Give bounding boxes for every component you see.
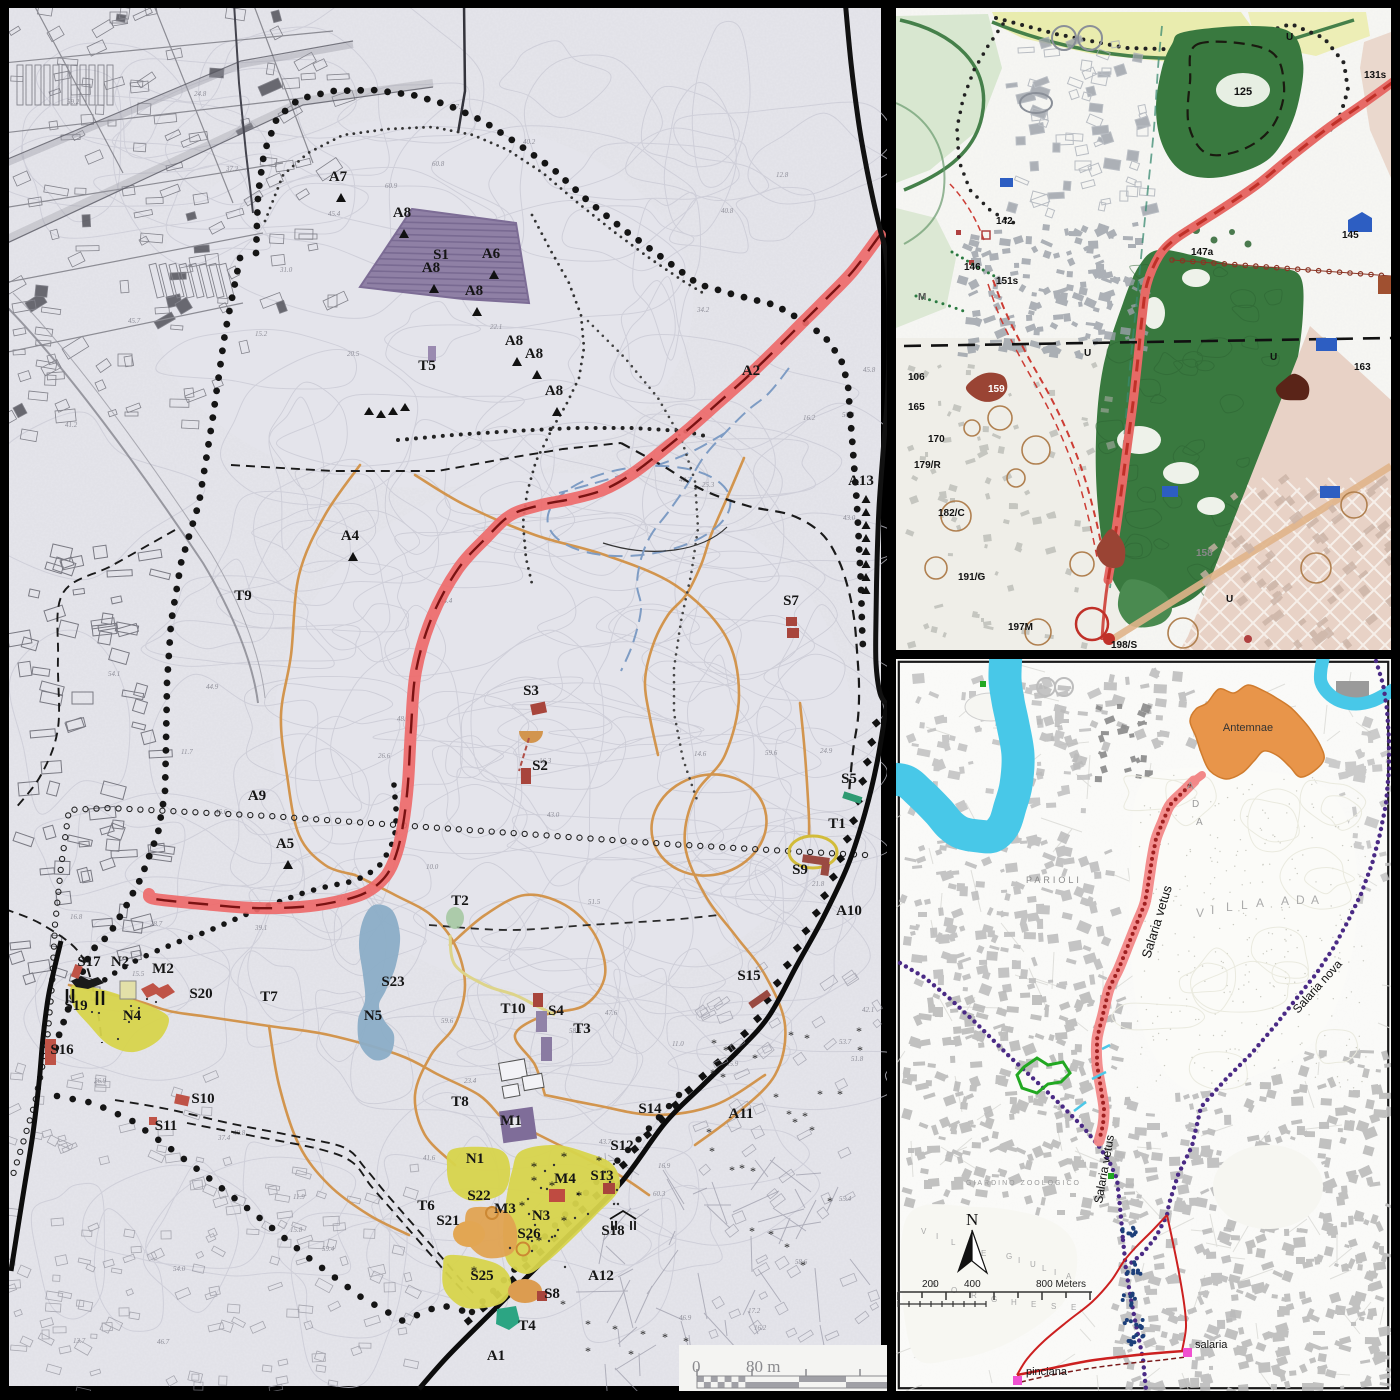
svg-text:146: 146 bbox=[964, 262, 981, 273]
svg-text:O: O bbox=[951, 1286, 957, 1295]
svg-text:15.5: 15.5 bbox=[132, 970, 145, 978]
svg-text:S19: S19 bbox=[64, 998, 87, 1014]
svg-text:42.1: 42.1 bbox=[862, 1006, 874, 1014]
svg-text:T8: T8 bbox=[451, 1094, 469, 1110]
svg-text:198/S: 198/S bbox=[1111, 640, 1137, 650]
svg-text:N1: N1 bbox=[466, 1151, 484, 1167]
svg-text:10.0: 10.0 bbox=[426, 863, 439, 871]
svg-text:*: * bbox=[784, 1240, 790, 1254]
svg-text:S26: S26 bbox=[517, 1226, 541, 1242]
svg-text:147a: 147a bbox=[1191, 247, 1214, 258]
svg-text:*: * bbox=[662, 1330, 668, 1344]
svg-text:A8: A8 bbox=[505, 333, 523, 349]
svg-text:179/R: 179/R bbox=[914, 460, 941, 471]
svg-text:N2: N2 bbox=[111, 954, 129, 970]
svg-text:31.0: 31.0 bbox=[279, 266, 293, 274]
svg-text:M: M bbox=[918, 292, 926, 303]
svg-text:*: * bbox=[640, 1327, 646, 1341]
svg-text:salaria: salaria bbox=[1195, 1339, 1228, 1351]
svg-text:*: * bbox=[711, 1036, 717, 1050]
svg-text:A4: A4 bbox=[341, 528, 360, 544]
svg-text:*: * bbox=[800, 1258, 806, 1272]
svg-text:A13: A13 bbox=[848, 473, 874, 489]
svg-text:*: * bbox=[857, 1043, 863, 1057]
svg-text:*: * bbox=[739, 1161, 745, 1175]
svg-text:*: * bbox=[709, 1144, 715, 1158]
svg-text:V: V bbox=[1196, 906, 1204, 920]
svg-text:*: * bbox=[729, 1163, 735, 1177]
svg-text:16.2: 16.2 bbox=[803, 414, 816, 422]
svg-text:12.8: 12.8 bbox=[776, 171, 789, 179]
svg-text:*: * bbox=[723, 1043, 729, 1057]
svg-text:I: I bbox=[1018, 1256, 1020, 1265]
svg-text:S16: S16 bbox=[50, 1042, 74, 1058]
svg-text:39.1: 39.1 bbox=[254, 924, 267, 932]
svg-text:197M: 197M bbox=[1008, 622, 1033, 633]
svg-text:43.0: 43.0 bbox=[547, 811, 560, 819]
svg-text:T9: T9 bbox=[234, 588, 252, 604]
svg-text:159: 159 bbox=[988, 384, 1005, 395]
svg-text:T3: T3 bbox=[573, 1021, 591, 1037]
svg-text:I: I bbox=[936, 1232, 938, 1241]
svg-text:106: 106 bbox=[908, 372, 925, 383]
svg-text:165: 165 bbox=[908, 402, 925, 413]
svg-text:A7: A7 bbox=[329, 169, 348, 185]
svg-text:U: U bbox=[1286, 32, 1293, 43]
svg-text:43.0: 43.0 bbox=[843, 514, 856, 522]
svg-text:11.0: 11.0 bbox=[672, 1040, 684, 1048]
svg-text:S7: S7 bbox=[783, 593, 799, 609]
svg-text:M1: M1 bbox=[500, 1113, 522, 1129]
svg-text:T2: T2 bbox=[451, 893, 469, 909]
svg-text:*: * bbox=[561, 1149, 568, 1164]
svg-text:L: L bbox=[951, 1238, 956, 1247]
svg-text:54.1: 54.1 bbox=[108, 670, 120, 678]
svg-text:S22: S22 bbox=[467, 1188, 490, 1204]
svg-text:T7: T7 bbox=[260, 989, 278, 1005]
svg-text:16.8: 16.8 bbox=[70, 913, 83, 921]
svg-text:S23: S23 bbox=[381, 974, 404, 990]
svg-text:46.7: 46.7 bbox=[157, 1338, 170, 1346]
svg-text:A8: A8 bbox=[545, 383, 563, 399]
svg-text:A9: A9 bbox=[248, 788, 266, 804]
svg-text:E: E bbox=[1031, 1300, 1036, 1309]
svg-text:H: H bbox=[1011, 1298, 1017, 1307]
svg-text:26.6: 26.6 bbox=[378, 752, 391, 760]
svg-text:45.7: 45.7 bbox=[128, 317, 141, 325]
svg-text:151s: 151s bbox=[996, 276, 1019, 287]
svg-text:*: * bbox=[628, 1347, 634, 1361]
svg-text:S13: S13 bbox=[590, 1168, 613, 1184]
svg-text:24.8: 24.8 bbox=[194, 90, 207, 98]
svg-text:A8: A8 bbox=[393, 205, 411, 221]
svg-text:800 Meters: 800 Meters bbox=[1036, 1279, 1086, 1290]
svg-text:*: * bbox=[750, 1164, 756, 1178]
svg-text:158: 158 bbox=[1196, 548, 1213, 559]
svg-text:145: 145 bbox=[1342, 230, 1359, 241]
svg-text:*: * bbox=[561, 1213, 568, 1228]
svg-text:A: A bbox=[1281, 894, 1289, 908]
svg-text:PARIOLI: PARIOLI bbox=[1026, 875, 1082, 885]
svg-text:*: * bbox=[720, 1070, 726, 1084]
svg-text:*: * bbox=[788, 1028, 794, 1042]
svg-text:D: D bbox=[1296, 893, 1305, 907]
svg-text:34.2: 34.2 bbox=[696, 306, 710, 314]
svg-text:14.6: 14.6 bbox=[694, 750, 707, 758]
svg-text:M4: M4 bbox=[554, 1171, 576, 1187]
svg-text:11.7: 11.7 bbox=[181, 748, 193, 756]
svg-text:A10: A10 bbox=[836, 903, 862, 919]
svg-text:A: A bbox=[1196, 817, 1203, 828]
svg-text:S17: S17 bbox=[77, 954, 101, 970]
svg-text:54.0: 54.0 bbox=[173, 1265, 186, 1273]
svg-text:I: I bbox=[1211, 903, 1214, 917]
svg-text:51.5: 51.5 bbox=[588, 898, 601, 906]
svg-text:D: D bbox=[1192, 799, 1199, 810]
svg-text:A8: A8 bbox=[525, 346, 543, 362]
svg-text:A5: A5 bbox=[276, 836, 294, 852]
svg-text:170: 170 bbox=[928, 434, 945, 445]
svg-text:A11: A11 bbox=[728, 1106, 753, 1122]
svg-text:17.2: 17.2 bbox=[748, 1307, 761, 1315]
svg-text:*: * bbox=[519, 1198, 526, 1213]
svg-text:S8: S8 bbox=[544, 1286, 560, 1302]
svg-text:20.5: 20.5 bbox=[347, 350, 360, 358]
svg-text:37.4: 37.4 bbox=[217, 1134, 231, 1142]
svg-text:N5: N5 bbox=[364, 1008, 382, 1024]
svg-text:45.8: 45.8 bbox=[863, 366, 876, 374]
svg-text:45.4: 45.4 bbox=[328, 210, 341, 218]
svg-text:pinciana: pinciana bbox=[1026, 1366, 1068, 1378]
svg-text:N3: N3 bbox=[532, 1208, 550, 1224]
svg-text:182/C: 182/C bbox=[938, 508, 965, 519]
svg-text:A: A bbox=[1187, 781, 1194, 792]
svg-text:40.8: 40.8 bbox=[721, 207, 734, 215]
svg-text:59.6: 59.6 bbox=[765, 749, 778, 757]
svg-text:S21: S21 bbox=[436, 1213, 459, 1229]
svg-text:*: * bbox=[802, 1109, 808, 1123]
svg-text:N: N bbox=[966, 1210, 978, 1229]
svg-text:S4: S4 bbox=[548, 1003, 564, 1019]
svg-text:A8: A8 bbox=[465, 283, 483, 299]
svg-text:*: * bbox=[817, 1087, 823, 1101]
svg-text:G: G bbox=[1006, 1252, 1012, 1261]
svg-text:T4: T4 bbox=[518, 1318, 536, 1334]
svg-text:T5: T5 bbox=[418, 358, 436, 374]
svg-text:L: L bbox=[1241, 898, 1248, 912]
svg-text:S3: S3 bbox=[523, 683, 539, 699]
svg-text:U: U bbox=[1084, 348, 1091, 359]
svg-text:Antemnae: Antemnae bbox=[1223, 722, 1273, 734]
svg-text:80 m: 80 m bbox=[746, 1357, 780, 1376]
svg-text:*: * bbox=[531, 1159, 538, 1174]
svg-text:191/G: 191/G bbox=[958, 572, 985, 583]
svg-text:60.8: 60.8 bbox=[432, 160, 445, 168]
svg-text:*: * bbox=[749, 1224, 755, 1238]
svg-text:25.3: 25.3 bbox=[702, 481, 715, 489]
svg-text:*: * bbox=[710, 1066, 716, 1080]
svg-text:A12: A12 bbox=[588, 1268, 614, 1284]
svg-text:S5: S5 bbox=[841, 771, 857, 787]
svg-text:S18: S18 bbox=[601, 1223, 624, 1239]
svg-text:22.1: 22.1 bbox=[490, 323, 502, 331]
svg-text:L: L bbox=[1042, 1264, 1047, 1273]
svg-text:*: * bbox=[773, 1090, 779, 1104]
svg-text:*: * bbox=[531, 1173, 538, 1188]
svg-text:S14: S14 bbox=[638, 1101, 662, 1117]
svg-text:S11: S11 bbox=[155, 1118, 178, 1134]
svg-text:*: * bbox=[768, 1227, 774, 1241]
svg-text:*: * bbox=[585, 1317, 591, 1331]
svg-text:A8: A8 bbox=[422, 260, 440, 276]
svg-text:53.7: 53.7 bbox=[839, 1038, 852, 1046]
svg-text:142: 142 bbox=[996, 216, 1013, 227]
svg-text:M2: M2 bbox=[152, 961, 174, 977]
svg-text:59.6: 59.6 bbox=[441, 1017, 454, 1025]
svg-text:I: I bbox=[1054, 1268, 1056, 1277]
svg-text:U: U bbox=[1226, 594, 1233, 605]
svg-text:E: E bbox=[1071, 1303, 1076, 1312]
svg-text:S2: S2 bbox=[532, 758, 548, 774]
svg-text:400: 400 bbox=[964, 1279, 981, 1290]
svg-text:T10: T10 bbox=[500, 1001, 525, 1017]
svg-text:16.9: 16.9 bbox=[658, 1162, 671, 1170]
svg-text:47.6: 47.6 bbox=[605, 1009, 618, 1017]
svg-text:60.3: 60.3 bbox=[653, 1190, 666, 1198]
svg-text:S12: S12 bbox=[610, 1138, 633, 1154]
svg-text:44.9: 44.9 bbox=[206, 683, 219, 691]
svg-text:S9: S9 bbox=[792, 862, 808, 878]
svg-text:*: * bbox=[560, 1297, 566, 1311]
svg-text:S20: S20 bbox=[189, 986, 212, 1002]
svg-text:A1: A1 bbox=[487, 1348, 505, 1364]
svg-text:*: * bbox=[576, 1188, 583, 1203]
svg-text:T1: T1 bbox=[828, 816, 846, 832]
svg-text:*: * bbox=[856, 1024, 862, 1038]
svg-text:41.6: 41.6 bbox=[423, 1154, 436, 1162]
svg-text:46.9: 46.9 bbox=[679, 1314, 692, 1322]
svg-text:24.9: 24.9 bbox=[820, 747, 833, 755]
svg-text:A2: A2 bbox=[742, 363, 760, 379]
svg-text:60.9: 60.9 bbox=[385, 182, 398, 190]
svg-text:L: L bbox=[1226, 900, 1233, 914]
svg-text:*: * bbox=[792, 1115, 798, 1129]
svg-text:S25: S25 bbox=[470, 1268, 493, 1284]
svg-text:V: V bbox=[921, 1227, 927, 1236]
svg-text:M3: M3 bbox=[494, 1201, 516, 1217]
svg-text:N4: N4 bbox=[123, 1008, 142, 1024]
svg-text:A: A bbox=[1256, 896, 1264, 910]
svg-text:23.4: 23.4 bbox=[464, 1077, 477, 1085]
svg-text:U: U bbox=[1270, 352, 1277, 363]
svg-text:S10: S10 bbox=[191, 1091, 214, 1107]
svg-text:*: * bbox=[585, 1344, 591, 1358]
svg-text:163: 163 bbox=[1354, 362, 1371, 373]
svg-text:15.2: 15.2 bbox=[255, 330, 268, 338]
svg-text:*: * bbox=[596, 1153, 603, 1168]
svg-text:125: 125 bbox=[1234, 86, 1252, 98]
svg-text:21.8: 21.8 bbox=[812, 880, 825, 888]
svg-text:200: 200 bbox=[922, 1279, 939, 1290]
svg-text:A6: A6 bbox=[482, 246, 501, 262]
svg-text:*: * bbox=[804, 1031, 810, 1045]
svg-text:T6: T6 bbox=[417, 1198, 435, 1214]
svg-text:U: U bbox=[1030, 1260, 1036, 1269]
svg-text:S: S bbox=[1051, 1302, 1056, 1311]
svg-text:*: * bbox=[612, 1322, 618, 1336]
svg-text:A: A bbox=[1311, 893, 1319, 907]
svg-text:13.7: 13.7 bbox=[73, 1337, 86, 1345]
svg-text:*: * bbox=[752, 1051, 758, 1065]
svg-text:131s: 131s bbox=[1364, 70, 1387, 81]
svg-text:GIARDINO ZOOLOGICO: GIARDINO ZOOLOGICO bbox=[966, 1180, 1081, 1187]
svg-text:S15: S15 bbox=[737, 968, 760, 984]
